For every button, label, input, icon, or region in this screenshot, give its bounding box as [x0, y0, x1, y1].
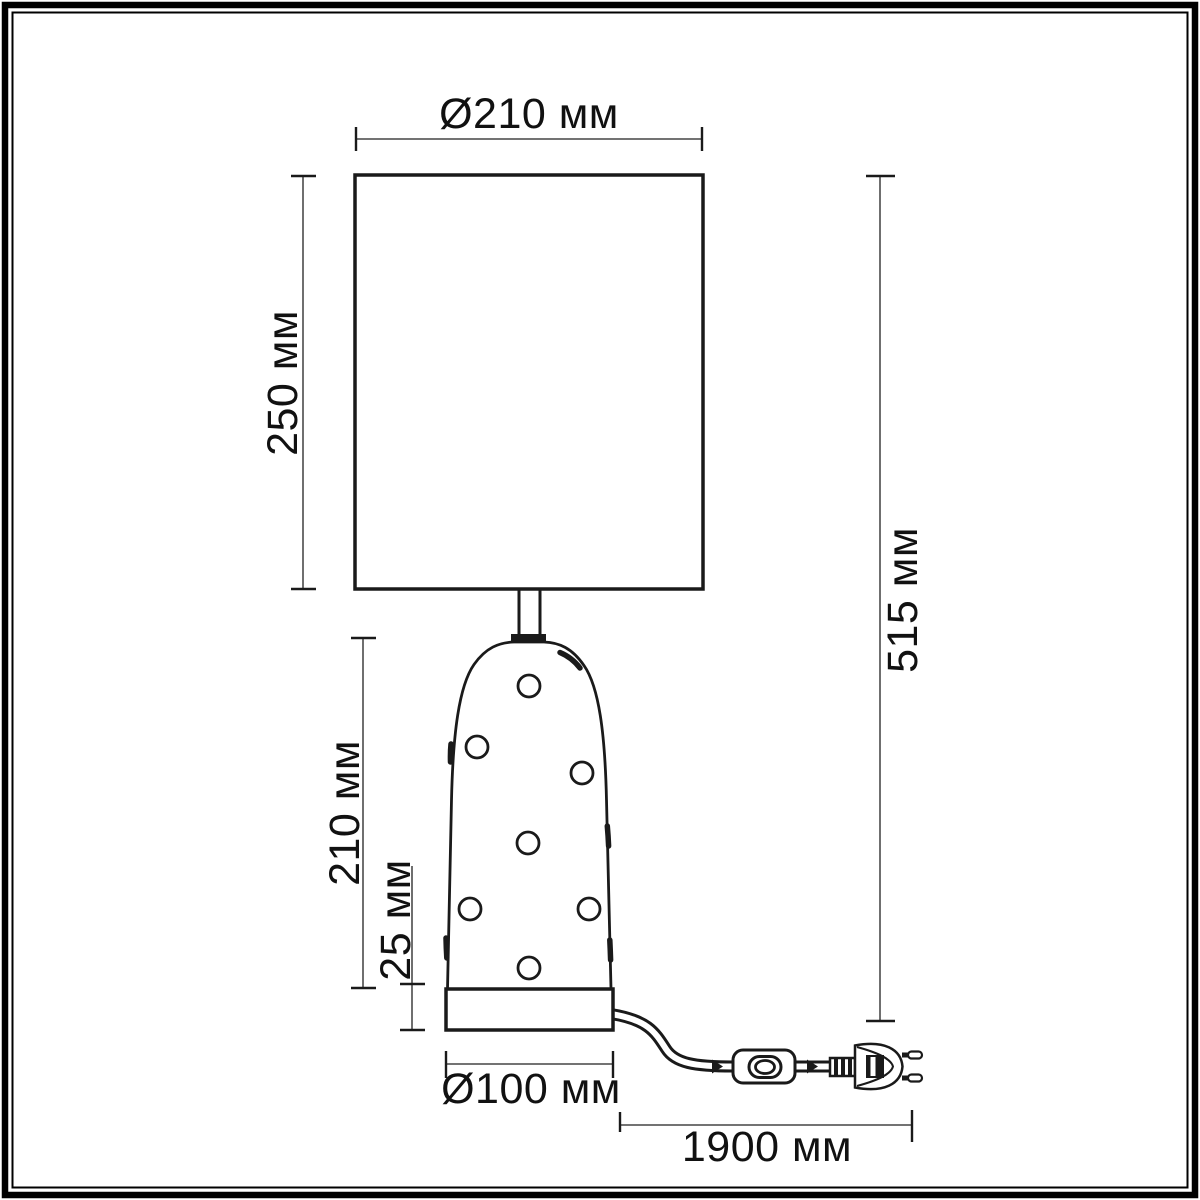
shade-diameter-label: Ø210 мм [439, 90, 619, 138]
shade-diameter-dimension: Ø210 мм [356, 90, 702, 151]
polka-dot [459, 898, 481, 920]
euro-plug-icon [830, 1044, 922, 1089]
total-height-label: 515 мм [879, 527, 927, 673]
base-diameter-dimension: Ø100 мм [441, 1051, 621, 1113]
cord-length-label: 1900 мм [682, 1123, 852, 1171]
cord-length-dimension: 1900 мм [620, 1110, 912, 1171]
polka-dot [518, 957, 540, 979]
neck-stem [511, 589, 546, 642]
power-cord [611, 1014, 831, 1074]
lamp-dimension-diagram: Ø210 мм 250 мм 210 мм 25 мм [0, 0, 1200, 1200]
polka-dot [517, 832, 539, 854]
total-height-dimension: 515 мм [866, 176, 927, 1021]
base-diameter-label: Ø100 мм [441, 1065, 621, 1113]
shade-height-label: 250 мм [259, 310, 307, 456]
body-height-label: 210 мм [321, 740, 369, 886]
base-height-label: 25 мм [372, 859, 420, 980]
inline-switch-icon [733, 1050, 795, 1083]
polka-dot [578, 898, 600, 920]
base-plinth-outline [446, 989, 613, 1030]
polka-dot [571, 762, 593, 784]
polka-dot [518, 675, 540, 697]
plug-prong-tip [908, 1075, 922, 1082]
lampshade-outline [355, 175, 703, 589]
plug-prong-tip [908, 1052, 922, 1059]
body-height-dimension: 210 мм [321, 638, 376, 988]
shade-height-dimension: 250 мм [259, 176, 316, 589]
base-height-dimension: 25 мм [372, 859, 425, 1030]
polka-dot [466, 736, 488, 758]
